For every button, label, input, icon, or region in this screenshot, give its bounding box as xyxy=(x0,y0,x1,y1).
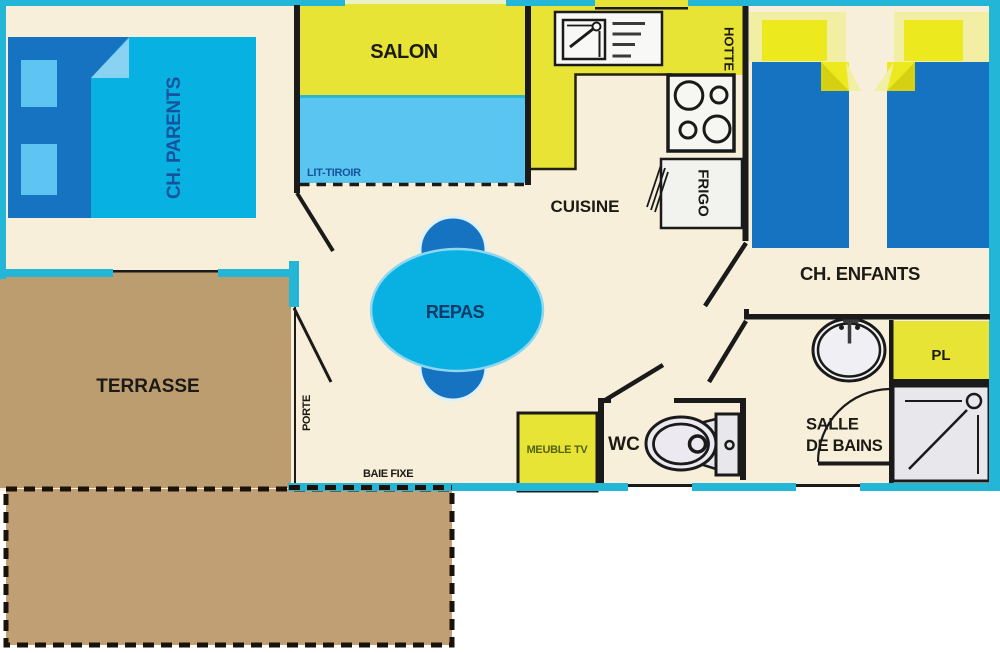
svg-text:REPAS: REPAS xyxy=(426,302,485,322)
svg-text:FRIGO: FRIGO xyxy=(695,169,712,217)
svg-text:BAIE FIXE: BAIE FIXE xyxy=(363,468,413,480)
svg-text:SALON: SALON xyxy=(370,41,438,63)
svg-text:CH. PARENTS: CH. PARENTS xyxy=(164,77,185,199)
svg-text:WC: WC xyxy=(608,434,640,455)
svg-text:MEUBLE TV: MEUBLE TV xyxy=(527,444,589,456)
svg-text:CUISINE: CUISINE xyxy=(551,197,620,216)
svg-text:CH. ENFANTS: CH. ENFANTS xyxy=(800,263,920,284)
svg-text:TERRASSE: TERRASSE xyxy=(96,376,199,397)
svg-text:HOTTE: HOTTE xyxy=(722,27,737,71)
svg-text:PORTE: PORTE xyxy=(301,395,313,431)
svg-text:LIT-TIROIR: LIT-TIROIR xyxy=(307,167,361,179)
svg-text:PL: PL xyxy=(931,347,950,364)
